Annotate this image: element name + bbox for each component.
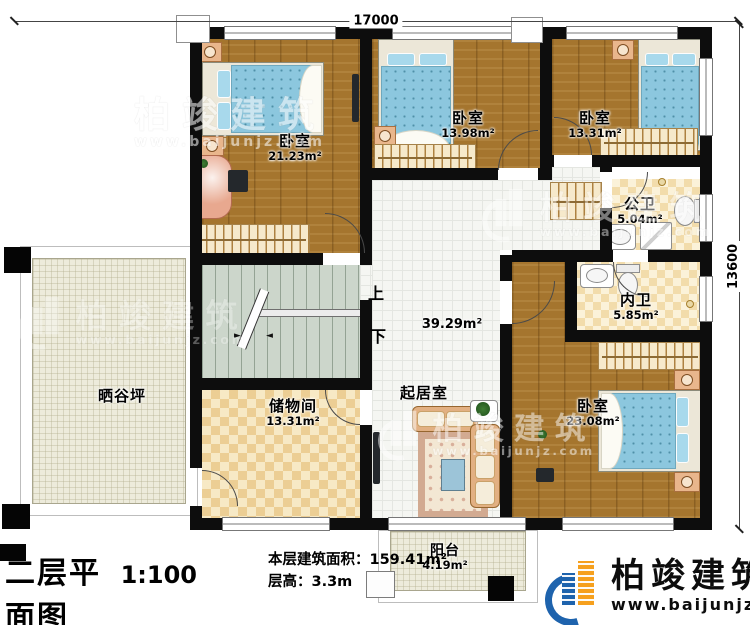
sink-basin bbox=[609, 229, 631, 245]
wardrobe bbox=[598, 342, 702, 370]
nightstand bbox=[612, 40, 634, 60]
wall bbox=[648, 250, 712, 262]
floor-height-label: 层高： bbox=[268, 574, 312, 590]
room-name: 公卫 bbox=[617, 196, 662, 213]
corridor-niche-floor bbox=[552, 167, 600, 180]
column bbox=[4, 247, 31, 273]
living-room-area-label: 39.29m² bbox=[422, 318, 482, 333]
wardrobe bbox=[374, 144, 476, 170]
room-name: 卧室 bbox=[568, 110, 621, 127]
window bbox=[224, 26, 336, 40]
wall bbox=[592, 155, 712, 167]
tv bbox=[373, 432, 380, 484]
floor-plan: ► ◄ bbox=[0, 0, 750, 625]
brand-logo: 柏竣建筑 www.baijunjz.com bbox=[545, 556, 750, 616]
room-label-ensuite-bath: 内卫 5.85m² bbox=[613, 292, 658, 322]
plan-scale: 1:100 bbox=[121, 561, 197, 589]
plant bbox=[476, 402, 490, 416]
tv bbox=[352, 74, 359, 122]
pillow bbox=[676, 397, 689, 427]
room-label-bedroom-3: 卧室 13.31m² bbox=[568, 110, 621, 140]
wall bbox=[190, 378, 372, 390]
room-area: 13.98m² bbox=[441, 127, 494, 140]
floor-area-label: 本层建筑面积： bbox=[268, 552, 370, 568]
window bbox=[699, 58, 713, 136]
room-label-bedroom-2: 卧室 13.98m² bbox=[441, 110, 494, 140]
sofa bbox=[412, 406, 478, 432]
floor-drain bbox=[686, 300, 694, 308]
terrace-floor bbox=[32, 258, 186, 504]
wall bbox=[500, 255, 512, 281]
window bbox=[566, 26, 678, 40]
room-name: 卧室 bbox=[441, 110, 494, 127]
window bbox=[222, 517, 330, 531]
room-name: 储物间 bbox=[266, 398, 319, 415]
sofa-cushion bbox=[475, 429, 495, 453]
brand-name: 柏竣建筑 bbox=[611, 559, 750, 593]
sink-basin bbox=[586, 268, 608, 283]
stair-arrow-left: ► bbox=[234, 332, 241, 341]
room-area: 13.31m² bbox=[266, 415, 319, 428]
wall bbox=[366, 168, 498, 180]
window bbox=[562, 517, 674, 531]
stair-up-label: 上 bbox=[368, 280, 384, 304]
toilet-bowl bbox=[674, 196, 696, 226]
wall bbox=[538, 168, 552, 180]
nightstand bbox=[200, 136, 224, 156]
wall bbox=[565, 330, 712, 342]
room-label-public-bath: 公卫 5.04m² bbox=[617, 196, 662, 226]
wall bbox=[190, 253, 323, 265]
dimension-right-value: 13600 bbox=[726, 241, 741, 292]
wall bbox=[360, 27, 372, 265]
room-area: 5.04m² bbox=[617, 213, 662, 226]
wall bbox=[540, 27, 552, 168]
stair-down-label: 下 bbox=[370, 323, 386, 347]
room-label-storage: 储物间 13.31m² bbox=[266, 398, 319, 428]
window bbox=[699, 276, 713, 322]
sofa bbox=[470, 424, 500, 508]
pillow bbox=[217, 70, 231, 98]
pillow bbox=[217, 102, 231, 130]
floor-area-value: 159.41m² bbox=[370, 552, 447, 568]
bed bbox=[202, 62, 324, 136]
window bbox=[392, 26, 520, 40]
brand-url: www.baijunjz.com bbox=[611, 595, 750, 614]
room-label-terrace: 晒谷坪 bbox=[98, 388, 146, 405]
sofa-cushion bbox=[475, 481, 495, 505]
nightstand bbox=[674, 472, 700, 492]
wall bbox=[600, 167, 612, 172]
column bbox=[488, 576, 514, 601]
room-name: 内卫 bbox=[613, 292, 658, 309]
monitor bbox=[228, 170, 248, 192]
plant bbox=[538, 430, 547, 439]
column bbox=[2, 504, 30, 529]
hall-closet bbox=[550, 182, 602, 220]
wall bbox=[546, 155, 554, 167]
pillow bbox=[676, 433, 689, 463]
tv bbox=[536, 468, 554, 482]
pillow bbox=[419, 53, 447, 66]
plan-title: 二层平面图 bbox=[5, 548, 111, 625]
room-name: 晒谷坪 bbox=[98, 388, 146, 405]
plan-info: 本层建筑面积：159.41m² 层高：3.3m bbox=[268, 549, 447, 594]
dimension-top-value: 17000 bbox=[349, 14, 402, 29]
pillow bbox=[645, 53, 669, 66]
room-area: 39.29m² bbox=[422, 318, 482, 333]
wall bbox=[360, 425, 372, 518]
pillow bbox=[387, 53, 415, 66]
nightstand bbox=[374, 126, 396, 146]
sofa-cushion bbox=[417, 411, 445, 427]
wall bbox=[512, 250, 613, 262]
balcony-sliding-door bbox=[388, 517, 526, 531]
wall bbox=[500, 324, 512, 518]
room-name: 卧室 bbox=[566, 398, 619, 415]
room-area: 5.85m² bbox=[613, 309, 658, 322]
stair-arrow-right: ◄ bbox=[266, 332, 273, 341]
wall bbox=[190, 27, 202, 468]
wardrobe bbox=[198, 224, 310, 254]
floor-height-value: 3.3m bbox=[312, 574, 353, 590]
sheet-fold bbox=[299, 65, 322, 133]
room-label-bedroom-1: 卧室 21.23m² bbox=[268, 133, 321, 163]
pillow bbox=[672, 53, 696, 66]
title-block: 二层平面图 1:100 bbox=[5, 548, 197, 625]
stair-handrail bbox=[252, 309, 364, 317]
staircase bbox=[202, 265, 360, 378]
room-area: 23.08m² bbox=[566, 415, 619, 428]
living-room-name-label: 起居室 bbox=[400, 385, 448, 402]
brand-building-icon bbox=[545, 556, 601, 616]
wall bbox=[190, 506, 202, 530]
window bbox=[699, 194, 713, 242]
brand-building-icon bbox=[70, 89, 122, 147]
room-name: 起居室 bbox=[400, 385, 448, 402]
wall-junction-box bbox=[176, 15, 210, 43]
room-area: 21.23m² bbox=[268, 150, 321, 163]
room-name: 卧室 bbox=[268, 133, 321, 150]
room-area: 13.31m² bbox=[568, 127, 621, 140]
sofa-cushion bbox=[475, 455, 495, 479]
room-label-bedroom-4: 卧室 23.08m² bbox=[566, 398, 619, 428]
nightstand bbox=[674, 370, 700, 390]
floor-drain bbox=[658, 178, 666, 186]
wall bbox=[363, 253, 372, 265]
